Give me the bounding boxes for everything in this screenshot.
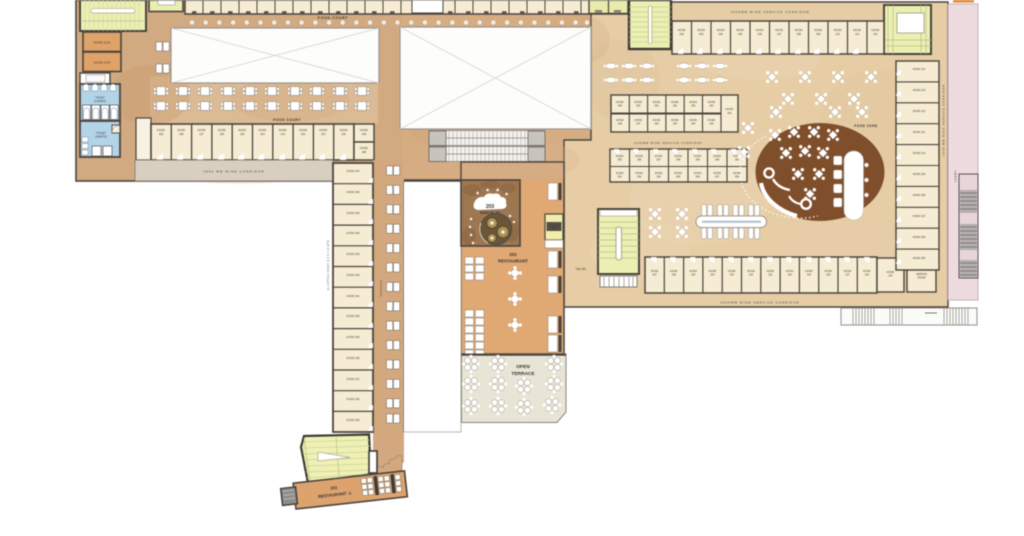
svg-text:KIOSK 236: KIOSK 236 — [347, 397, 361, 401]
svg-text:201: 201 — [873, 32, 878, 36]
svg-text:KIOSK 209: KIOSK 209 — [913, 173, 926, 176]
svg-text:257: 257 — [657, 159, 662, 162]
svg-text:KIOSK 244: KIOSK 244 — [347, 231, 361, 235]
svg-text:227: 227 — [199, 132, 204, 136]
svg-text:249: 249 — [618, 105, 623, 108]
svg-text:258: 258 — [676, 159, 681, 162]
svg-text:KIOSK: KIOSK — [756, 28, 764, 32]
svg-text:KIOSK 211: KIOSK 211 — [913, 131, 926, 134]
svg-text:242: 242 — [727, 112, 732, 115]
svg-text:223: 223 — [730, 274, 735, 277]
svg-text:224: 224 — [710, 274, 715, 277]
svg-text:245: 245 — [673, 123, 678, 126]
svg-text:210: 210 — [836, 32, 841, 36]
svg-text:216: 216 — [865, 274, 870, 277]
svg-text:KIOSK 246: KIOSK 246 — [347, 190, 361, 194]
svg-text:KIOSK: KIOSK — [157, 128, 165, 132]
svg-text:KIOSK: KIOSK — [177, 128, 185, 132]
svg-text:250: 250 — [636, 105, 641, 108]
svg-text:251: 251 — [655, 105, 660, 108]
svg-text:202: 202 — [509, 252, 517, 257]
svg-text:229: 229 — [159, 132, 164, 136]
svg-text:221: 221 — [768, 274, 773, 277]
svg-text:KIOSK 239: KIOSK 239 — [347, 335, 361, 339]
svg-text:222: 222 — [301, 132, 306, 136]
svg-text:(LADIES): (LADIES) — [94, 99, 106, 103]
svg-text:252: 252 — [673, 105, 678, 108]
svg-text:268: 268 — [735, 176, 740, 179]
svg-text:266: 266 — [696, 176, 701, 179]
svg-text:221: 221 — [321, 132, 326, 136]
svg-text:ALLOTTED KIOSK 3.0 X 4.0 MTS: ALLOTTED KIOSK 3.0 X 4.0 MTS — [327, 240, 330, 290]
svg-text:220: 220 — [342, 132, 347, 136]
svg-text:226: 226 — [220, 132, 225, 136]
svg-text:KIOSK: KIOSK — [279, 128, 287, 132]
svg-text:FOOD ZONE: FOOD ZONE — [854, 124, 877, 128]
svg-text:247: 247 — [636, 123, 641, 126]
svg-text:256: 256 — [637, 159, 642, 162]
svg-text:248: 248 — [362, 150, 367, 154]
svg-text:KIOSK 217a: KIOSK 217a — [94, 41, 111, 45]
svg-text:KIOSK: KIOSK — [872, 28, 880, 32]
svg-text:KIOSK: KIOSK — [678, 28, 686, 32]
svg-text:KIOSK: KIOSK — [259, 128, 267, 132]
svg-text:TERRACE: TERRACE — [511, 371, 535, 377]
svg-text:KIOSK: KIOSK — [697, 28, 705, 32]
svg-text:KIOSK 243: KIOSK 243 — [347, 252, 361, 256]
svg-text:KIOSK 242: KIOSK 242 — [347, 273, 361, 277]
svg-text:253: 253 — [691, 105, 696, 108]
svg-text:KIOSK 214: KIOSK 214 — [913, 68, 926, 71]
svg-text:TER. BR.: TER. BR. — [576, 267, 587, 271]
svg-text:KIOSK: KIOSK — [717, 28, 725, 32]
svg-text:KIOSK 217b: KIOSK 217b — [94, 61, 111, 65]
svg-text:228: 228 — [179, 132, 184, 136]
svg-text:202: 202 — [680, 32, 685, 36]
svg-text:KIOSK: KIOSK — [238, 128, 246, 132]
svg-text:203: 203 — [486, 204, 495, 210]
svg-text:KIOSK: KIOSK — [299, 128, 307, 132]
svg-text:260: 260 — [715, 159, 720, 162]
svg-text:255: 255 — [618, 159, 623, 162]
svg-text:LIFT: LIFT — [552, 229, 557, 231]
svg-text:263: 263 — [637, 176, 642, 179]
svg-text:246: 246 — [655, 123, 660, 126]
svg-text:264: 264 — [657, 176, 662, 179]
svg-text:KIOSK: KIOSK — [814, 28, 822, 32]
svg-text:KIOSK: KIOSK — [775, 28, 783, 32]
svg-text:KIOSK 206: KIOSK 206 — [913, 236, 926, 239]
svg-text:249: 249 — [362, 132, 367, 136]
svg-text:SERVICE: SERVICE — [549, 226, 560, 228]
svg-text:KIOSK: KIOSK — [834, 28, 842, 32]
svg-text:225: 225 — [240, 132, 245, 136]
svg-text:265: 265 — [676, 176, 681, 179]
svg-text:218: 218 — [826, 274, 831, 277]
svg-text:220: 220 — [788, 274, 793, 277]
svg-text:KIOSK: KIOSK — [736, 28, 744, 32]
svg-text:KIOSK: KIOSK — [360, 146, 368, 150]
svg-text:261: 261 — [735, 159, 740, 162]
svg-text:KIOSK: KIOSK — [795, 28, 803, 32]
svg-text:KIOSK 210: KIOSK 210 — [913, 152, 926, 155]
svg-text:217: 217 — [846, 274, 851, 277]
svg-text:KIOSK 240: KIOSK 240 — [347, 314, 361, 318]
svg-text:267: 267 — [715, 176, 720, 179]
svg-text:225: 225 — [691, 274, 696, 277]
svg-text:209: 209 — [816, 32, 821, 36]
svg-text:205: 205 — [738, 32, 743, 36]
svg-text:223: 223 — [281, 132, 286, 136]
svg-text:FOOD COURT: FOOD COURT — [318, 16, 348, 20]
svg-text:1500 MM WIDE SERVICE CORRIDOR: 1500 MM WIDE SERVICE CORRIDOR — [942, 84, 946, 156]
svg-text:KIOSK 208: KIOSK 208 — [913, 194, 926, 197]
svg-text:KIOSK: KIOSK — [853, 28, 861, 32]
svg-text:203: 203 — [699, 32, 704, 36]
svg-text:KIOSK: KIOSK — [360, 128, 368, 132]
svg-text:227: 227 — [653, 274, 658, 277]
svg-text:222: 222 — [749, 274, 754, 277]
svg-text:KIOSK 247: KIOSK 247 — [347, 169, 361, 173]
svg-text:204: 204 — [719, 32, 724, 36]
svg-text:KIOSK: KIOSK — [218, 128, 226, 132]
svg-text:OPEN: OPEN — [516, 364, 530, 370]
svg-text:254: 254 — [709, 105, 714, 108]
svg-text:KIOSK 237: KIOSK 237 — [347, 377, 361, 381]
svg-text:LOBBY: LOBBY — [954, 170, 958, 182]
svg-text:259: 259 — [696, 159, 701, 162]
svg-text:ROOM: ROOM — [918, 277, 926, 280]
svg-text:KIOSK: KIOSK — [198, 128, 206, 132]
svg-text:1500MM WIDE SERVICE CORRIDOR: 1500MM WIDE SERVICE CORRIDOR — [720, 301, 799, 305]
svg-text:1500MM WIDE SERVICE CORRIDOR: 1500MM WIDE SERVICE CORRIDOR — [634, 141, 703, 145]
svg-text:215: 215 — [888, 275, 893, 278]
svg-text:244: 244 — [691, 123, 696, 126]
svg-text:KIOSK 238: KIOSK 238 — [347, 356, 361, 360]
svg-text:248: 248 — [618, 123, 623, 126]
svg-text:KIOSK 205: KIOSK 205 — [913, 257, 926, 260]
svg-text:KIOSK: KIOSK — [319, 128, 327, 132]
svg-text:KIOSK 241: KIOSK 241 — [347, 294, 361, 298]
svg-text:1800 MM WIDE CORRIDOR: 1800 MM WIDE CORRIDOR — [203, 170, 264, 174]
svg-text:KIOSK 213: KIOSK 213 — [913, 89, 926, 92]
svg-text:208: 208 — [797, 32, 802, 36]
svg-text:262: 262 — [618, 176, 623, 179]
svg-text:(GENTS): (GENTS) — [95, 135, 107, 139]
svg-text:CORRIDOR: CORRIDOR — [380, 279, 383, 296]
svg-text:KIOSK 212: KIOSK 212 — [913, 110, 926, 113]
svg-text:226: 226 — [672, 274, 677, 277]
svg-text:KIOSK 235: KIOSK 235 — [347, 418, 361, 422]
svg-text:243: 243 — [709, 123, 714, 126]
svg-text:KIOSK 207: KIOSK 207 — [913, 215, 926, 218]
svg-text:1500MM WIDE SERVICE CORRIDOR: 1500MM WIDE SERVICE CORRIDOR — [730, 10, 809, 14]
svg-text:219: 219 — [807, 274, 812, 277]
svg-text:207: 207 — [777, 32, 782, 36]
svg-text:206: 206 — [758, 32, 763, 36]
svg-text:201: 201 — [330, 485, 338, 491]
svg-text:224: 224 — [260, 132, 265, 136]
svg-text:KIOSK: KIOSK — [726, 108, 734, 111]
svg-text:FOOD COURT: FOOD COURT — [273, 118, 301, 122]
svg-text:KIOSK: KIOSK — [340, 128, 348, 132]
svg-text:RESTAURANT: RESTAURANT — [498, 259, 528, 264]
svg-text:211: 211 — [855, 32, 860, 36]
svg-text:KIOSK 245: KIOSK 245 — [347, 211, 361, 215]
